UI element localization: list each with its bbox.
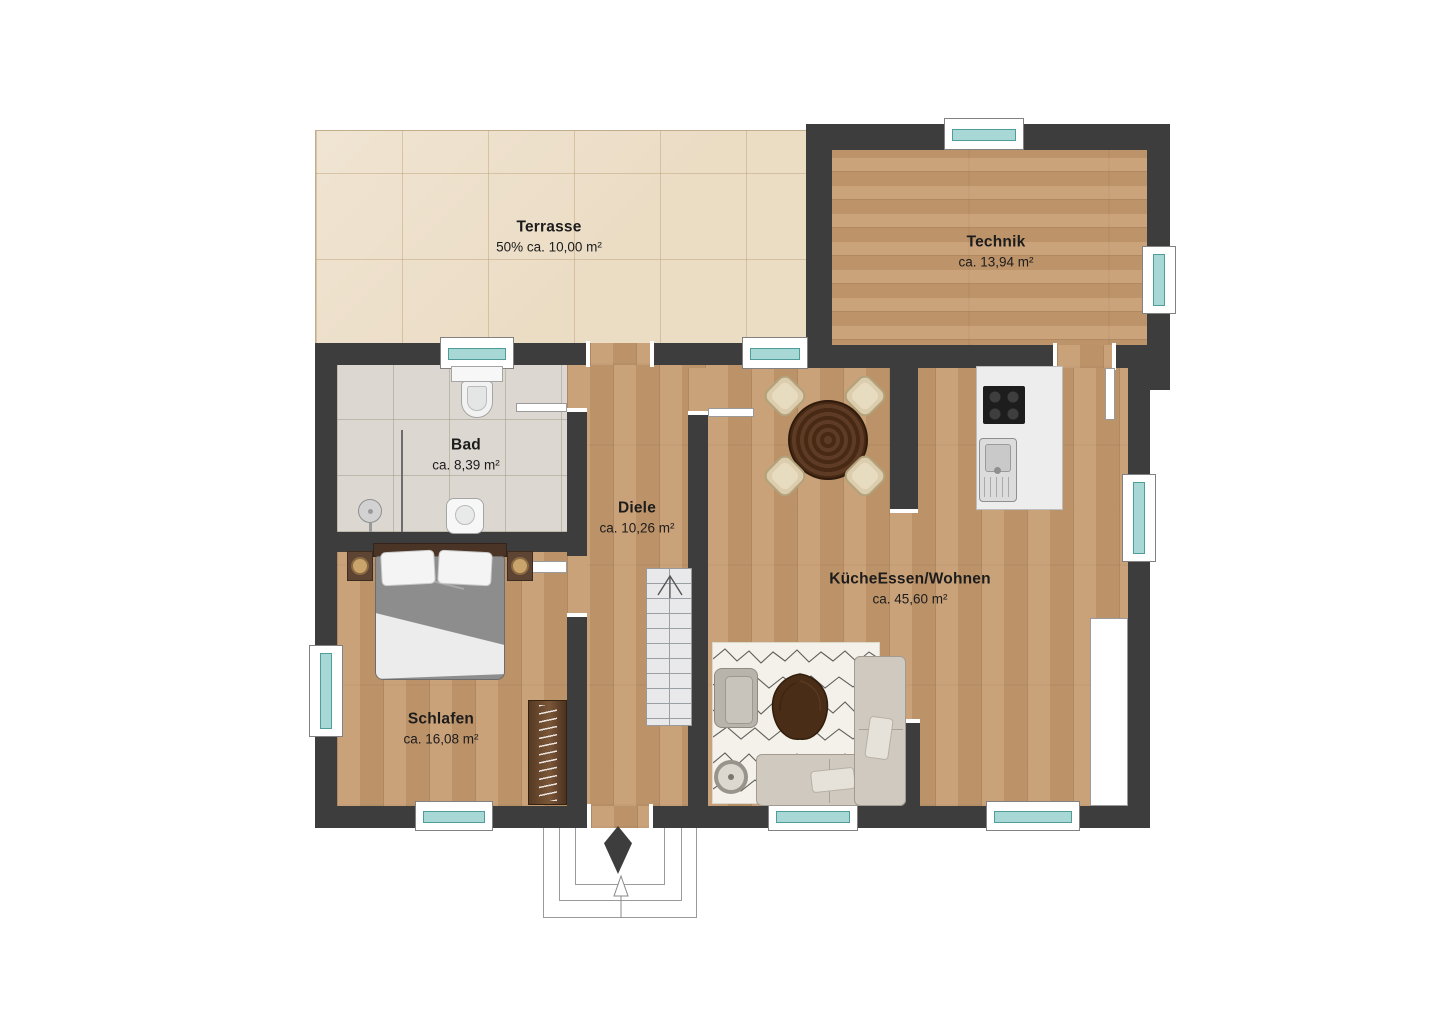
kitchen-island bbox=[976, 366, 1063, 510]
window-glass bbox=[776, 811, 850, 823]
room-name: Schlafen bbox=[403, 709, 478, 731]
wall-right-main bbox=[1128, 368, 1150, 828]
shower-glass-panel bbox=[401, 430, 403, 532]
wall-kitchen-island-back bbox=[890, 345, 918, 513]
armchair-cushion bbox=[725, 676, 753, 724]
kitchen-door-leaf bbox=[708, 408, 754, 417]
bathroom-door-leaf bbox=[516, 403, 567, 412]
washbasin bbox=[446, 498, 484, 534]
jamb bbox=[587, 804, 591, 830]
jamb bbox=[567, 613, 587, 617]
bedside-lamp-right-icon bbox=[511, 557, 529, 575]
label-terrasse: Terrasse 50% ca. 10,00 m² bbox=[496, 217, 602, 258]
label-bad: Bad ca. 8,39 m² bbox=[432, 435, 500, 476]
label-technik: Technik ca. 13,94 m² bbox=[958, 232, 1033, 273]
kitchen-sink bbox=[979, 438, 1017, 502]
window-glass bbox=[1153, 254, 1165, 306]
terrace-door-opening bbox=[590, 343, 650, 365]
stairs-up-arrow-icon bbox=[647, 571, 693, 617]
room-area: ca. 45,60 m² bbox=[829, 590, 991, 609]
room-name: Bad bbox=[432, 435, 500, 457]
sink-faucet bbox=[994, 467, 1001, 474]
jamb bbox=[1112, 343, 1116, 370]
entrance-path-arrow-icon bbox=[610, 872, 632, 920]
window-schlafen-south bbox=[415, 801, 493, 831]
jamb bbox=[688, 411, 708, 415]
floor-lamp-icon bbox=[714, 760, 748, 794]
room-name: Terrasse bbox=[496, 217, 602, 239]
window-glass bbox=[448, 348, 506, 360]
label-diele: Diele ca. 10,26 m² bbox=[599, 498, 674, 539]
label-wohnen: KücheEssen/Wohnen ca. 45,60 m² bbox=[829, 569, 991, 610]
cooktop bbox=[983, 386, 1025, 424]
entrance-door-opening bbox=[591, 806, 649, 828]
coffee-table bbox=[766, 671, 834, 743]
label-schlafen: Schlafen ca. 16,08 m² bbox=[403, 709, 478, 750]
kitchen-door-opening bbox=[688, 368, 708, 413]
wardrobe-hangers bbox=[539, 705, 557, 801]
room-area: ca. 13,94 m² bbox=[958, 253, 1033, 272]
toilet-bowl-inner bbox=[467, 386, 487, 411]
room-area: ca. 16,08 m² bbox=[403, 730, 478, 749]
wall-top-main bbox=[315, 343, 808, 365]
jamb bbox=[567, 408, 587, 412]
wall-left-main bbox=[315, 343, 337, 828]
stairs bbox=[646, 568, 692, 726]
window-glass bbox=[320, 653, 332, 729]
bathroom-door-opening bbox=[567, 365, 587, 410]
bedside-lamp-left-icon bbox=[351, 557, 369, 575]
window-living-south-2 bbox=[986, 801, 1080, 831]
toilet-bowl-icon bbox=[461, 381, 493, 418]
window-kitchen-north bbox=[742, 337, 808, 369]
window-glass bbox=[750, 348, 800, 360]
window-schlafen-west bbox=[309, 645, 343, 737]
window-living-east bbox=[1122, 474, 1156, 562]
room-name: Technik bbox=[958, 232, 1033, 254]
pillow-right bbox=[437, 550, 493, 587]
shower-head-center bbox=[368, 509, 373, 514]
toilet-tank bbox=[451, 366, 503, 382]
window-glass bbox=[952, 129, 1016, 141]
window-technik-east bbox=[1142, 246, 1176, 314]
washbasin-bowl bbox=[455, 505, 475, 525]
jamb bbox=[890, 509, 918, 513]
room-area: ca. 10,26 m² bbox=[599, 519, 674, 538]
window-bathroom bbox=[440, 337, 514, 369]
sofa-pillow bbox=[810, 767, 856, 793]
armchair bbox=[714, 668, 758, 728]
jamb bbox=[650, 341, 654, 367]
sofa-right-section bbox=[854, 656, 906, 806]
jamb bbox=[649, 804, 653, 830]
shower-head-icon bbox=[358, 499, 382, 523]
wall-terrace-divider bbox=[806, 128, 832, 368]
window-technik-north bbox=[944, 118, 1024, 150]
window-glass bbox=[423, 811, 485, 823]
bedroom-door-opening bbox=[567, 556, 587, 615]
technik-door-opening bbox=[1057, 345, 1112, 368]
room-name: Diele bbox=[599, 498, 674, 520]
technik-door-leaf bbox=[1105, 368, 1115, 420]
pillow-left bbox=[380, 550, 436, 587]
jamb bbox=[586, 341, 590, 367]
floor-plan: Terrasse 50% ca. 10,00 m² Technik ca. 13… bbox=[0, 0, 1440, 1018]
room-name: KücheEssen/Wohnen bbox=[829, 569, 991, 591]
room-area: 50% ca. 10,00 m² bbox=[496, 238, 602, 257]
floor-lamp-center bbox=[728, 774, 734, 780]
sofa-pillow bbox=[864, 716, 894, 761]
wardrobe bbox=[528, 700, 567, 805]
window-glass bbox=[1133, 482, 1145, 554]
room-area: ca. 8,39 m² bbox=[432, 456, 500, 475]
window-glass bbox=[994, 811, 1072, 823]
sink-drainboard bbox=[984, 477, 1012, 497]
shower-stem bbox=[369, 523, 372, 532]
sideboard bbox=[1090, 618, 1128, 806]
